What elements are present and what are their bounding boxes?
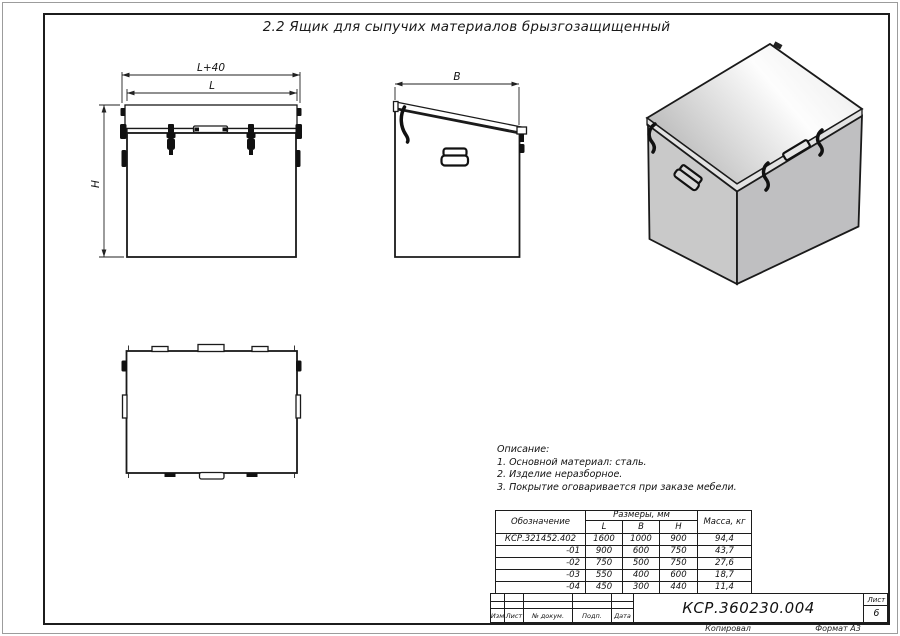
label-docnum: № докум. — [524, 609, 573, 622]
label-izm: Изм — [491, 609, 505, 622]
copied-label: Копировал — [688, 624, 768, 633]
table-row: -01 900 600 750 43,7 — [496, 546, 752, 558]
col-H: H — [660, 521, 698, 534]
dim-label-depth: B — [453, 71, 460, 83]
top-body — [127, 351, 298, 473]
col-dimensions: Размеры, мм — [586, 511, 698, 521]
side-body — [395, 109, 520, 257]
side-handle-icon — [442, 149, 469, 166]
label-podp: Подп. — [573, 609, 612, 622]
dim-label-overall-width: L+40 — [197, 62, 225, 74]
format-label: Формат А3 — [798, 624, 878, 633]
size-table: Обозначение Размеры, мм Масса, кг L B H … — [495, 510, 752, 594]
isometric-view — [647, 41, 862, 284]
label-list: Лист — [505, 609, 524, 622]
side-view: B — [394, 71, 527, 257]
col-mass: Масса, кг — [698, 511, 752, 534]
top-view — [122, 345, 302, 480]
col-designation: Обозначение — [496, 511, 586, 534]
dim-label-height: H — [90, 180, 102, 188]
drawing-sheet: 2.2 Ящик для сыпучих материалов брызгоза… — [0, 0, 900, 636]
revision-grid: Изм Лист № докум. Подп. Дата — [491, 594, 634, 622]
front-body — [127, 133, 296, 257]
table-row: -04 450 300 440 11,4 — [496, 582, 752, 594]
front-handle-icon — [194, 126, 228, 133]
table-header-row: Обозначение Размеры, мм Масса, кг — [496, 511, 752, 521]
title-block: Изм Лист № докум. Подп. Дата КСР.360230.… — [490, 593, 888, 623]
document-number: КСР.360230.004 — [634, 594, 863, 622]
col-L: L — [586, 521, 623, 534]
description-heading: Описание: — [497, 444, 827, 457]
description-item: 3. Покрытие оговаривается при заказе меб… — [497, 482, 827, 495]
drawing-views: L+40 L H — [0, 0, 900, 636]
description-item: 2. Изделие неразборное. — [497, 469, 827, 482]
sheet-label: Лист — [864, 594, 889, 606]
bottom-handle-icon — [200, 473, 225, 480]
front-lid — [125, 105, 297, 129]
table-row: -02 750 500 750 27,6 — [496, 558, 752, 570]
table-row: -03 550 400 600 18,7 — [496, 570, 752, 582]
sheet-cell: Лист 6 — [863, 594, 889, 622]
description-item: 1. Основной материал: сталь. — [497, 457, 827, 470]
sheet-number: 6 — [864, 606, 889, 621]
top-handle-icon — [198, 345, 224, 352]
table-row: КСР.321452.402 1600 1000 900 94,4 — [496, 534, 752, 546]
dim-label-width: L — [209, 80, 215, 92]
front-view: L+40 L H — [90, 62, 302, 257]
description-block: Описание: 1. Основной материал: сталь. 2… — [497, 444, 827, 494]
col-B: B — [623, 521, 660, 534]
label-data: Дата — [612, 609, 634, 622]
